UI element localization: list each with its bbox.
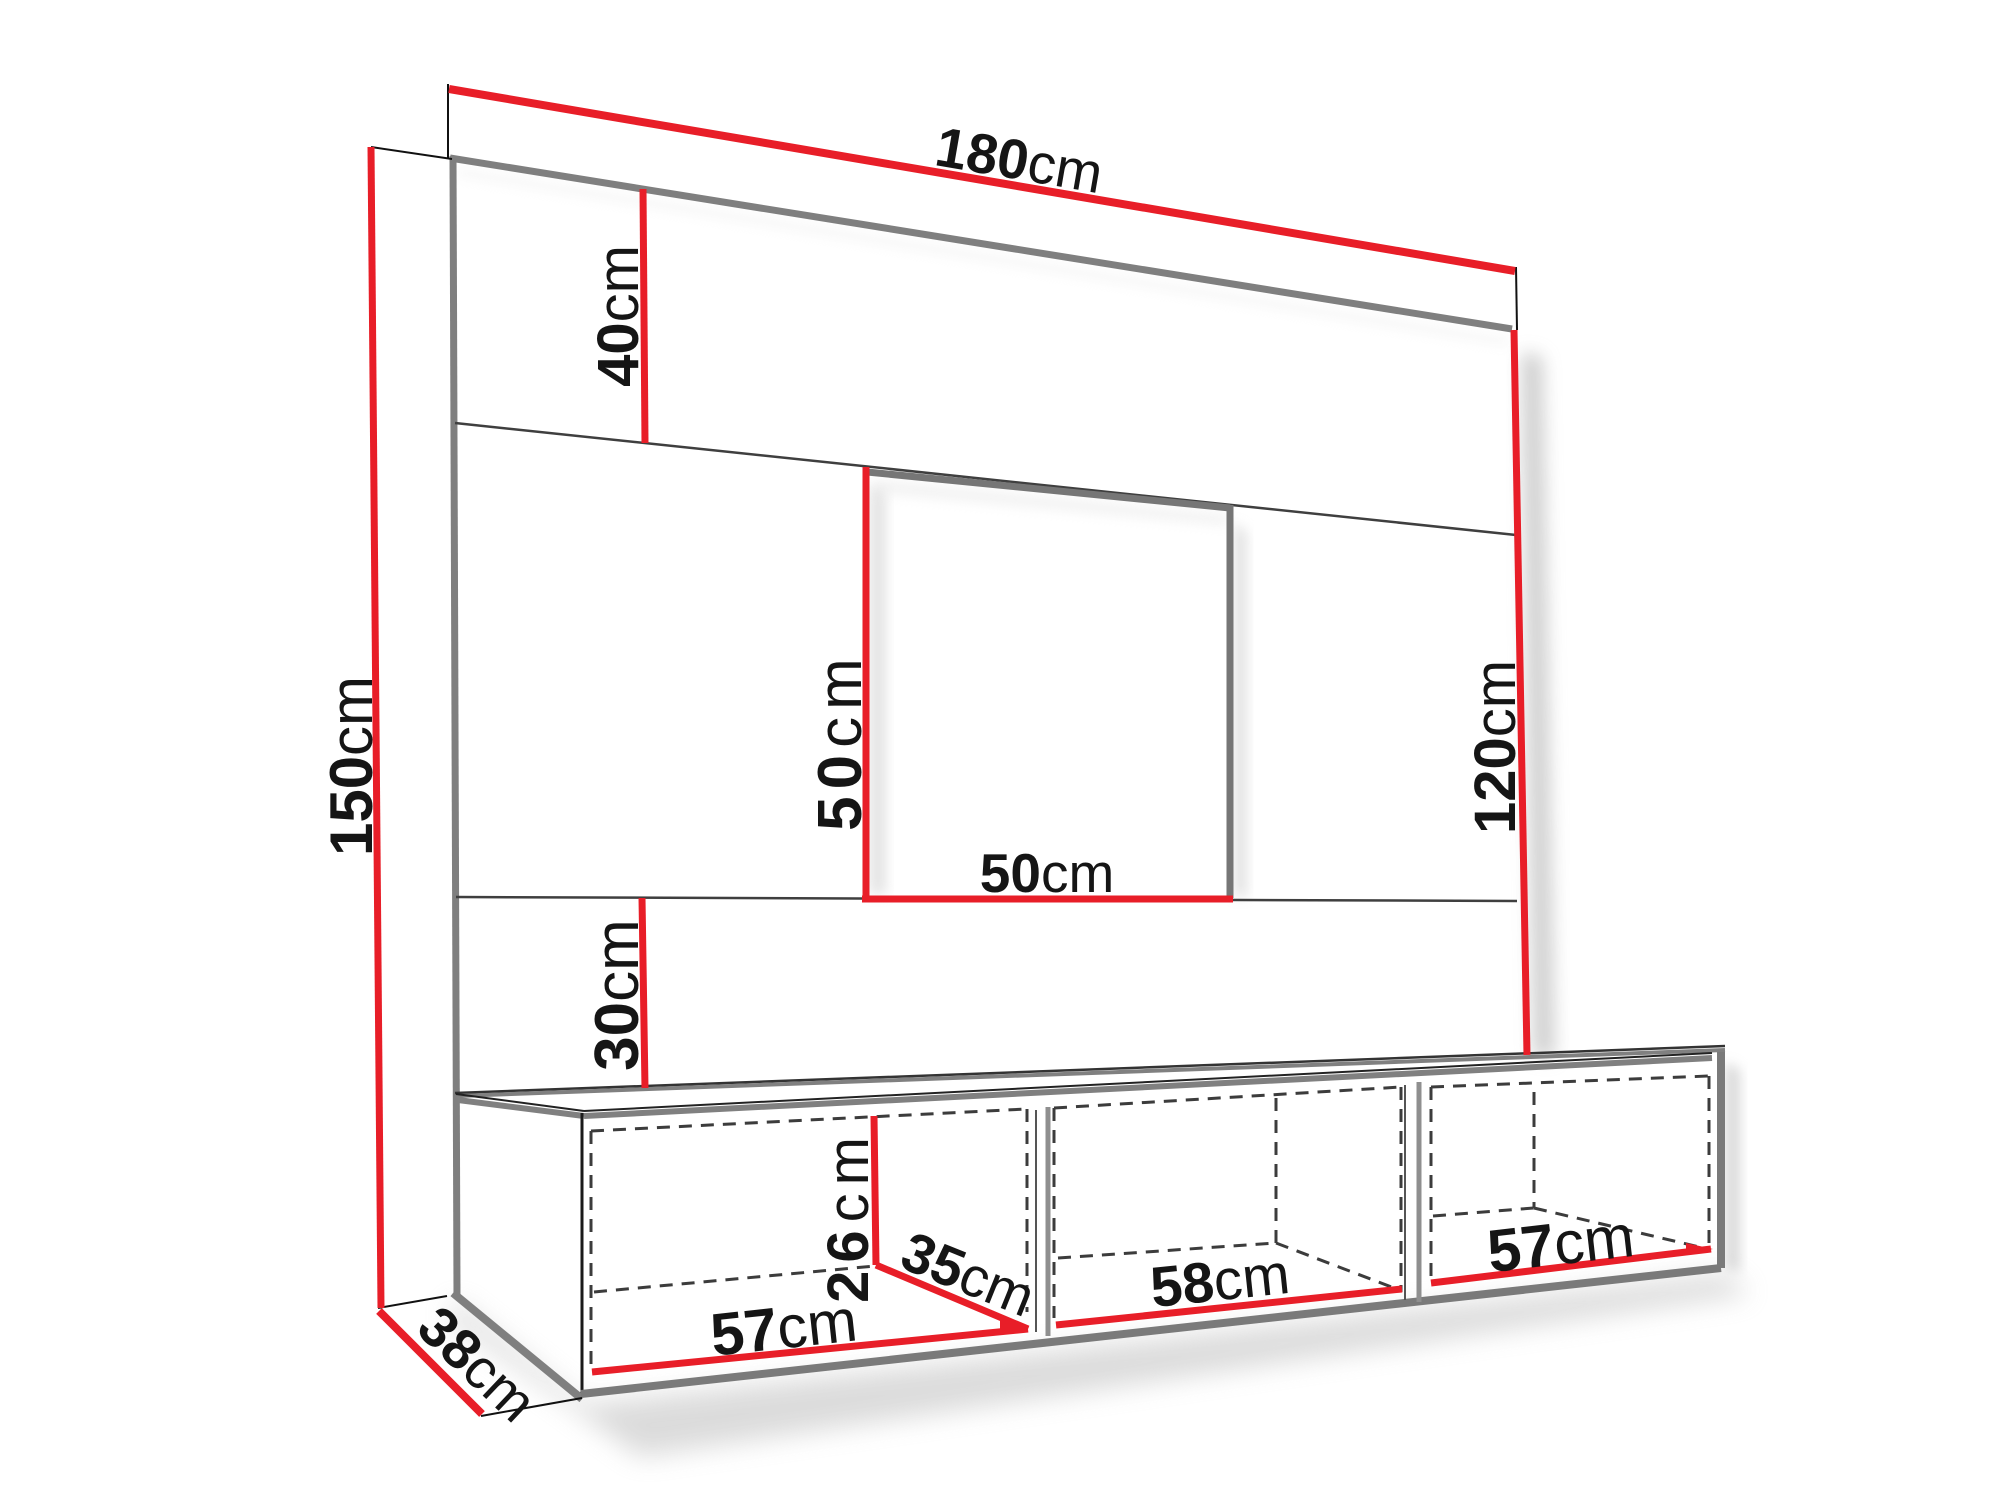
svg-text:30cm: 30cm [583,919,652,1071]
svg-text:50cm: 50cm [980,842,1115,904]
svg-text:120cm: 120cm [1463,660,1528,834]
svg-text:26cm: 26cm [816,1129,881,1303]
svg-text:50cm: 50cm [806,651,875,831]
svg-text:40cm: 40cm [586,245,651,387]
svg-text:150cm: 150cm [318,676,385,856]
